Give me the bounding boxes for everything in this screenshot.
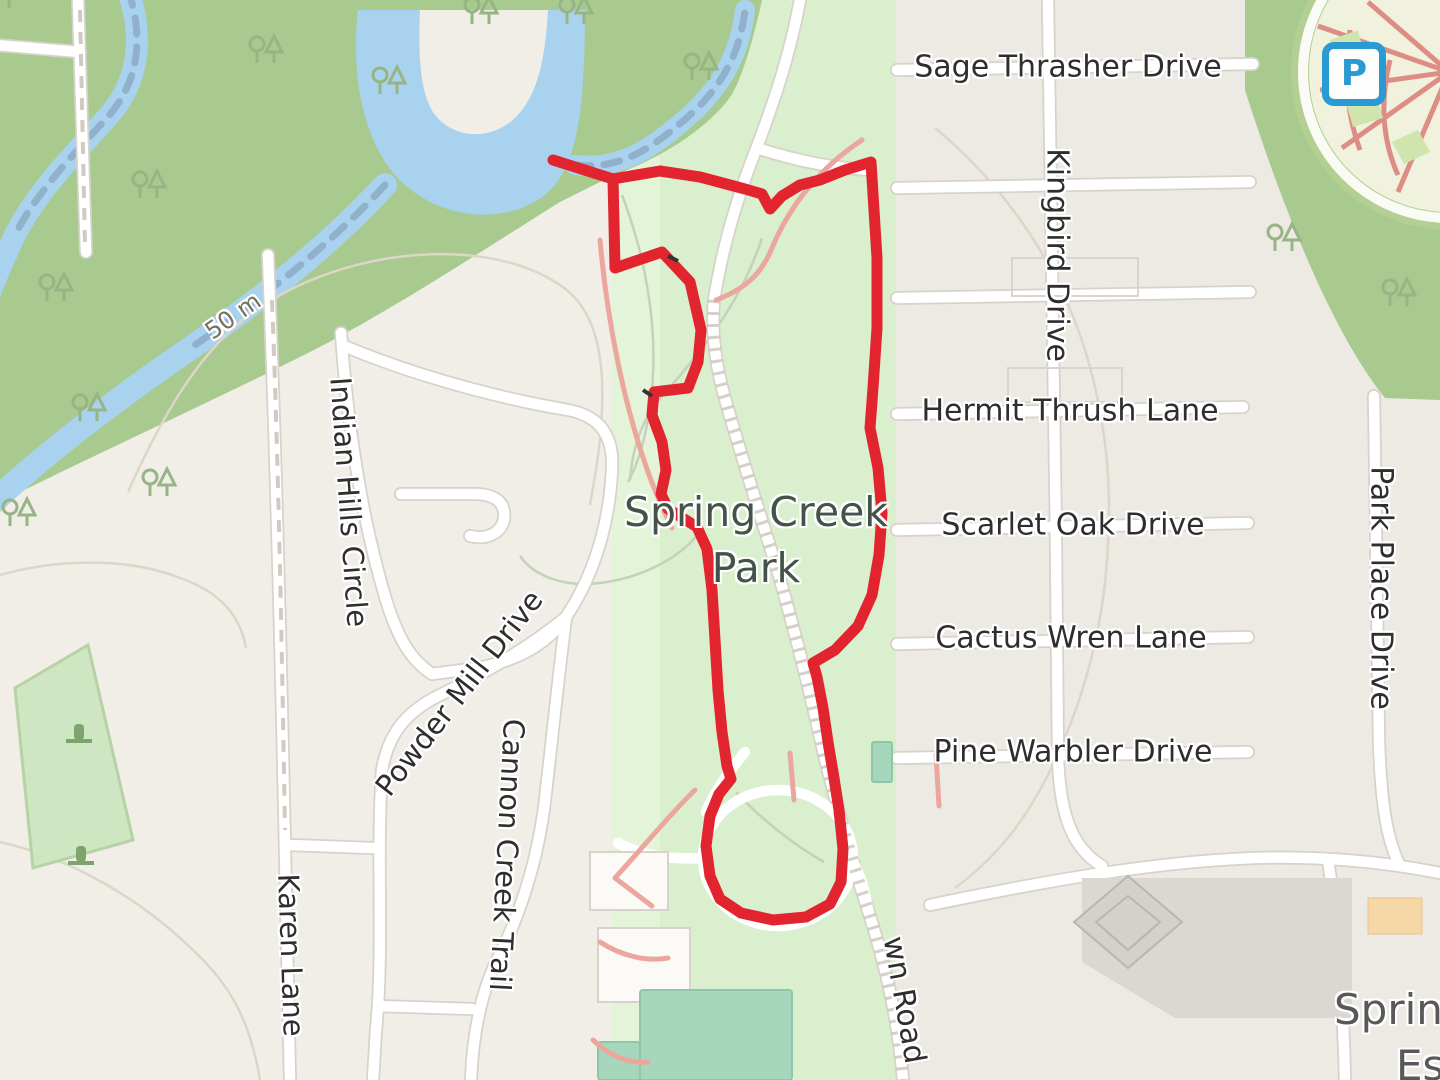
parking-icon: P <box>1322 42 1386 106</box>
street-label-pine-warbler: Pine Warbler Drive <box>934 735 1213 770</box>
map-canvas[interactable]: Sage Thrasher Drive Kingbird Drive Hermi… <box>0 0 1440 1080</box>
orange-building <box>1368 898 1422 934</box>
street-label-sage-thrasher: Sage Thrasher Drive <box>914 50 1221 85</box>
estates-line1: Spring <box>1334 982 1440 1038</box>
park-name-label: Spring Creek Park <box>624 484 888 596</box>
street-label-park-place: Park Place Drive <box>1364 466 1399 710</box>
estates-line2: Estates <box>1334 1038 1440 1080</box>
street-label-kingbird: Kingbird Drive <box>1040 148 1075 362</box>
street-label-hermit-thrush: Hermit Thrush Lane <box>921 394 1218 429</box>
street-label-cactus-wren: Cactus Wren Lane <box>935 621 1206 656</box>
park-name-line1: Spring Creek <box>624 484 888 540</box>
street-label-scarlet-oak: Scarlet Oak Drive <box>941 508 1204 543</box>
street-label-karen-lane: Karen Lane <box>271 873 311 1037</box>
estates-label: Spring Estates <box>1334 982 1440 1080</box>
park-name-line2: Park <box>624 540 888 596</box>
